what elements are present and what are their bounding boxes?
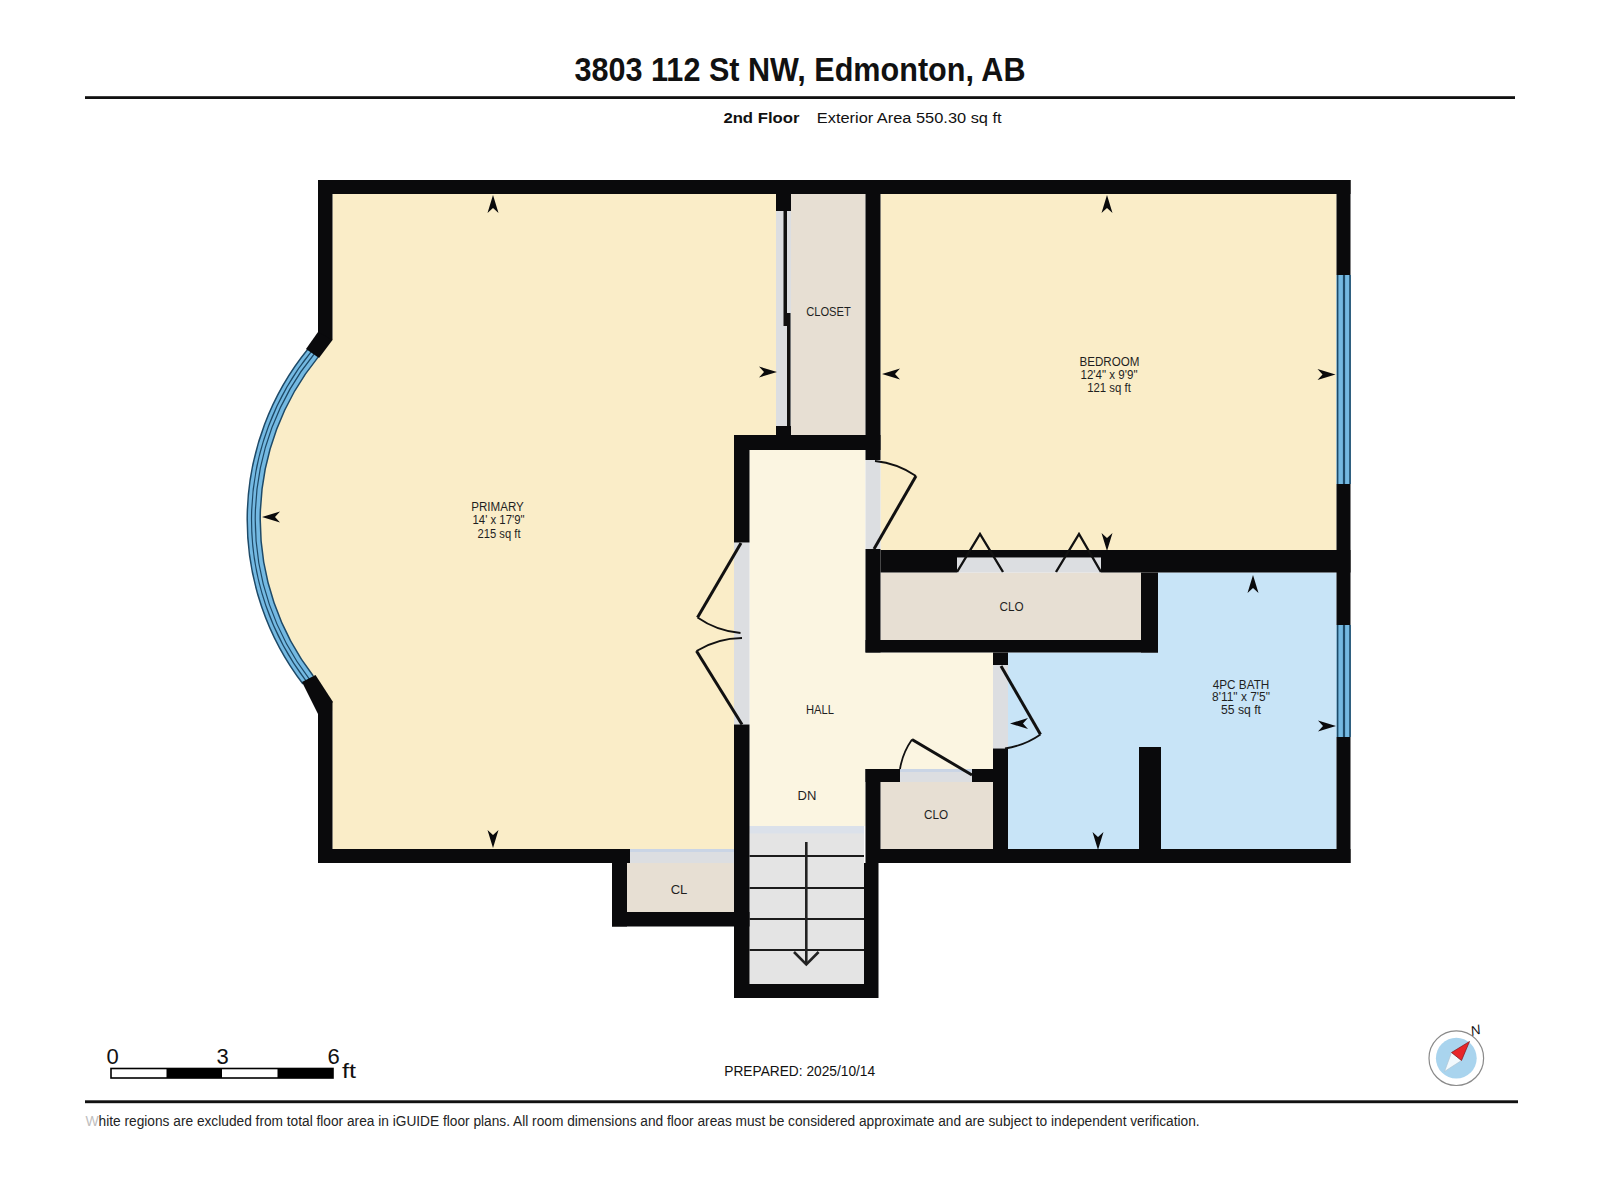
svg-text:ft: ft [342,1059,356,1082]
svg-text:55 sq ft: 55 sq ft [1221,703,1262,717]
svg-text:215 sq ft: 215 sq ft [478,527,521,541]
svg-text:14' x 17'9": 14' x 17'9" [473,513,525,527]
svg-text:12'4" x 9'9": 12'4" x 9'9" [1081,368,1138,382]
svg-text:CLO: CLO [924,808,948,822]
svg-text:W: W [85,1113,99,1129]
svg-text:PRIMARY: PRIMARY [471,500,524,514]
svg-text:3: 3 [216,1044,228,1069]
svg-text:HALL: HALL [806,703,834,717]
svg-text:hite regions are excluded from: hite regions are excluded from total flo… [99,1113,1200,1129]
svg-text:CL: CL [671,883,688,897]
svg-text:3803 112 St NW, Edmonton, AB: 3803 112 St NW, Edmonton, AB [575,50,1026,88]
svg-text:Exterior Area 550.30 sq ft: Exterior Area 550.30 sq ft [817,109,1003,126]
svg-text:2nd Floor: 2nd Floor [723,109,799,126]
svg-text:121 sq ft: 121 sq ft [1087,381,1131,395]
svg-text:CLO: CLO [999,600,1023,614]
svg-text:BEDROOM: BEDROOM [1080,355,1140,369]
svg-text:PREPARED: 2025/10/14: PREPARED: 2025/10/14 [724,1062,875,1079]
svg-text:DN: DN [798,789,817,803]
svg-text:CLOSET: CLOSET [806,305,851,319]
svg-text:0: 0 [107,1044,119,1069]
svg-text:6: 6 [327,1044,339,1069]
